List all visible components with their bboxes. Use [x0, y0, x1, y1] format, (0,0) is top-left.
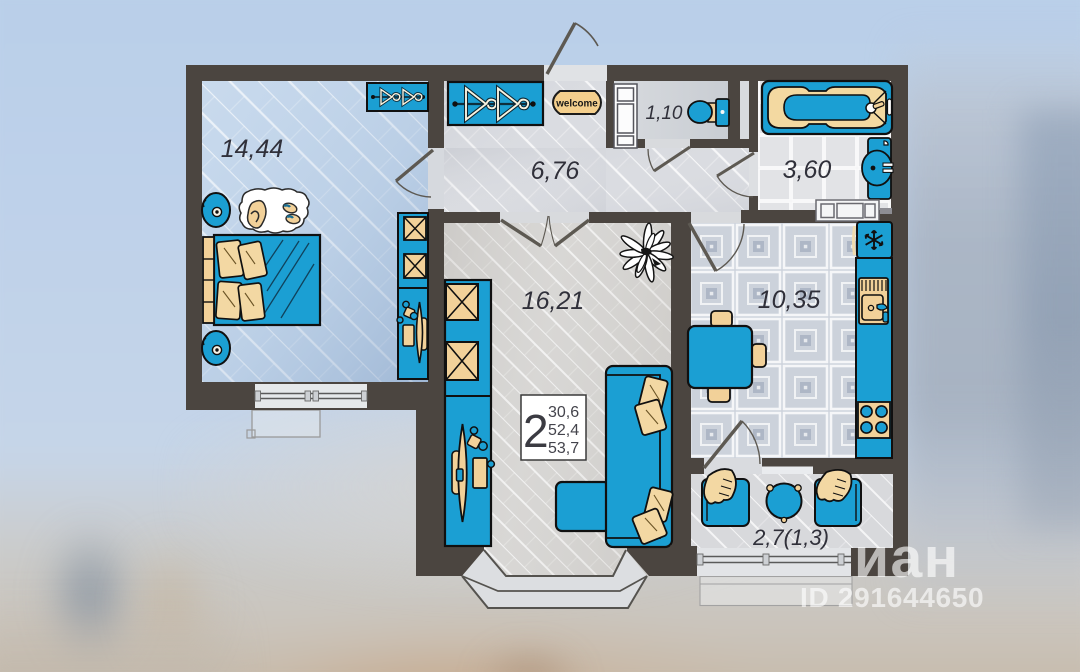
svg-text:52,4: 52,4 — [548, 422, 579, 439]
svg-text:30,6: 30,6 — [548, 404, 579, 421]
svg-text:53,7: 53,7 — [548, 440, 579, 457]
svg-text:ID 291644650: ID 291644650 — [800, 582, 984, 613]
svg-text:1,10: 1,10 — [646, 103, 683, 124]
svg-text:3,60: 3,60 — [783, 156, 832, 184]
svg-text:welcome: welcome — [555, 99, 598, 110]
svg-text:иан: иан — [854, 526, 960, 590]
svg-text:2,7(1,3): 2,7(1,3) — [752, 525, 829, 550]
svg-text:6,76: 6,76 — [531, 157, 580, 185]
svg-text:14,44: 14,44 — [221, 135, 284, 163]
svg-text:2: 2 — [523, 405, 549, 457]
svg-text:16,21: 16,21 — [522, 287, 585, 315]
svg-text:10,35: 10,35 — [758, 286, 821, 314]
